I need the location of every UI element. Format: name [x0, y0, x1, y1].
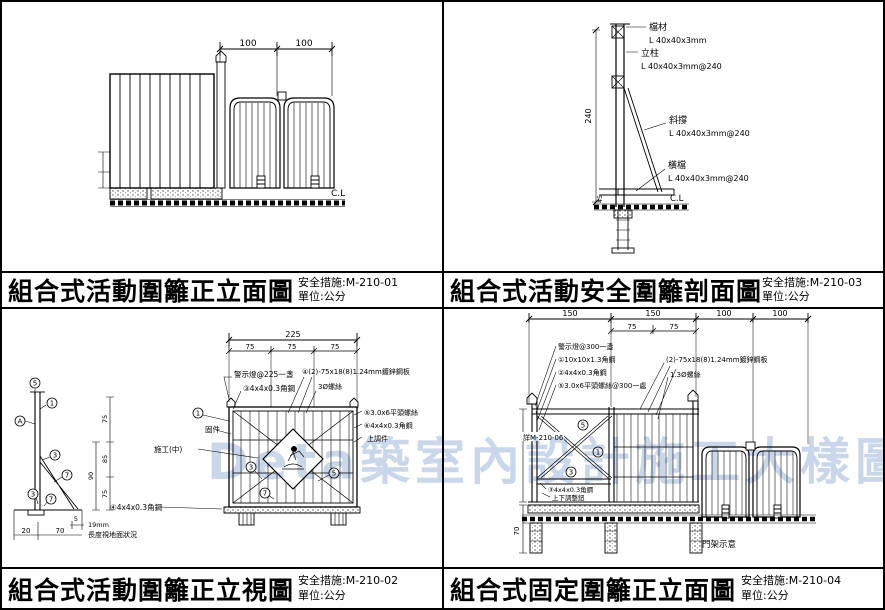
safety-ref: 安全措施:M-210-01	[298, 276, 436, 290]
callout-1: 1	[596, 449, 600, 457]
detail-ref-label: 詳M-210-06	[523, 433, 564, 442]
dim-75c: 75	[331, 343, 340, 351]
ref-block: 安全措施:M-210-04 單位:公分	[741, 574, 879, 603]
unit-label: 單位:公分	[298, 589, 436, 603]
dim-5: 5	[74, 515, 78, 523]
angle-steel-1-label: ①10x10x1.3角鋼	[558, 355, 616, 364]
drawing-sheet: 100 100 C.L	[0, 0, 885, 610]
callout-3: 3	[53, 452, 57, 460]
front-elevation-drawing: 100 100 C.L	[2, 2, 442, 271]
dim-base: 45	[597, 195, 604, 203]
centerline-label: C.L	[331, 189, 345, 199]
post-label: 立柱	[641, 47, 659, 59]
side-detail-geometry	[14, 389, 114, 540]
cap-spec: L 40x40x3mm	[649, 36, 707, 45]
panel-spec-label: (2)-75x18(8)1.24mm鍍鋅鋼板	[666, 355, 768, 364]
fixed-fence-drawing: 詳M-210-06 5 1 3 150 150 100 100 75 75 警示…	[444, 309, 885, 567]
callout-1-frame: 1	[196, 410, 200, 418]
centerline-label: C.L	[670, 194, 684, 204]
dim-v2: 85	[101, 455, 109, 463]
callout-7-frame: 7	[263, 490, 267, 498]
rail-label: 橫檔	[668, 159, 686, 171]
ref-block: 安全措施:M-210-02 單位:公分	[298, 574, 436, 603]
adjuster-label: 上調件	[367, 434, 388, 443]
flat-screw-label: ⑤3.0x6平頭螺絲	[364, 408, 418, 417]
ref-block: 安全措施:M-210-03 單位:公分	[762, 276, 885, 305]
angle-steel-label: ③4x4x0.3角鋼	[243, 383, 295, 393]
callout-5: 5	[33, 380, 37, 388]
worker-icon	[291, 446, 297, 452]
page-title: 組合式活動安全圍籬剖面圖	[450, 272, 762, 308]
flat-screw-label: ⑤3.0x6平頭螺絲@300一處	[558, 381, 646, 390]
panel-fixed-fence: 詳M-210-06 5 1 3 150 150 100 100 75 75 警示…	[444, 309, 885, 567]
dim-150a: 150	[562, 309, 577, 318]
dim-100b: 100	[772, 309, 787, 318]
ground-note: 長度視地面狀況	[88, 530, 137, 539]
wire-label: 1.3Ø螺絲	[670, 370, 701, 379]
dim-v4: 75	[101, 490, 109, 498]
warning-light-label: 警示燈@225一盞	[234, 369, 294, 379]
callout-1: 1	[50, 400, 54, 408]
dim-19mm: 19mm	[88, 521, 109, 529]
angle-bottom-label: ④4x4x0.3角鋼	[110, 502, 162, 512]
dim-100-left: 100	[239, 39, 256, 49]
safety-ref: 安全措施:M-210-02	[298, 574, 436, 588]
titlebar-front-view: 組合式活動圍籬正立視圖 安全措施:M-210-02 單位:公分	[2, 567, 442, 608]
callout-A: A	[18, 418, 23, 426]
screw-label: 3Ø螺絲	[318, 382, 342, 391]
gate-note-label: 門架示意	[702, 539, 736, 550]
titlebar-section: 組合式活動安全圍籬剖面圖 安全措施:M-210-03 單位:公分	[444, 271, 885, 309]
page-title: 組合式活動圍籬正立視圖	[8, 571, 294, 607]
callout-5: 5	[581, 422, 585, 430]
dim-20: 20	[22, 527, 31, 535]
dim-100-right: 100	[295, 39, 312, 49]
front-view-drawing: 5 1 A 3 7 3 7 20 70 5 19mm 長度視地面狀況 75 85…	[2, 309, 442, 567]
page-title: 組合式活動圍籬正立面圖	[8, 272, 294, 308]
angle-steel-2-label: ②4x4x0.3角鋼	[558, 368, 607, 377]
dim-70: 70	[56, 527, 65, 535]
rail-spec: L 40x40x3mm@240	[668, 174, 749, 183]
section-drawing: 檔材 L 40x40x3mm 立柱 L 40x40x3mm@240 斜撐 L 4…	[444, 2, 885, 271]
dim-height: 240	[584, 108, 593, 123]
titlebar-front-elevation: 組合式活動圍籬正立面圖 安全措施:M-210-01 單位:公分	[2, 271, 442, 309]
construction-sign-label: 施工(中)	[154, 444, 182, 454]
callout-3: 3	[569, 469, 573, 477]
brace-spec: L 40x40x3mm@240	[669, 129, 750, 138]
dim-75a: 75	[628, 323, 637, 331]
dim-150b: 150	[645, 309, 660, 318]
callout-5-frame: 5	[332, 470, 336, 478]
dim-v3: 90	[87, 472, 95, 480]
unit-label: 單位:公分	[741, 589, 879, 603]
front-elevation-geometry	[98, 42, 345, 207]
warning-light-label: 警示燈@300一盞	[558, 342, 613, 351]
callout-7: 7	[65, 472, 69, 480]
adjuster-label: 上下調整鈕	[552, 493, 585, 502]
callout-3-frame: 3	[249, 464, 253, 472]
callout-7b: 7	[49, 496, 53, 504]
unit-label: 單位:公分	[762, 290, 885, 304]
brace-label: 斜撐	[669, 114, 687, 126]
page-title: 組合式固定圍籬正立面圖	[450, 571, 736, 607]
unit-label: 單位:公分	[298, 290, 436, 304]
ref-block: 安全措施:M-210-01 單位:公分	[298, 276, 436, 305]
dim-225: 225	[285, 330, 300, 339]
dim-75b: 75	[670, 323, 679, 331]
angle-mid-label: ③4x4x0.3角鋼	[548, 485, 594, 494]
angle-iron-label: ⑥4x4x0.3角鋼	[364, 421, 413, 430]
panel-front-view: 5 1 A 3 7 3 7 20 70 5 19mm 長度視地面狀況 75 85…	[2, 309, 442, 567]
safety-ref: 安全措施:M-210-04	[741, 574, 879, 588]
safety-ref: 安全措施:M-210-03	[762, 276, 885, 290]
dim-100a: 100	[716, 309, 731, 318]
callout-3b: 3	[31, 491, 35, 499]
titlebar-fixed-fence: 組合式固定圍籬正立面圖 安全措施:M-210-04 單位:公分	[444, 567, 885, 608]
dim-v1: 75	[101, 415, 109, 423]
dim-75b: 75	[288, 343, 297, 351]
cap-label: 檔材	[649, 21, 667, 33]
panel-spec-label: ④(2)-75x18(8)1.24mm鍍鋅鋼板	[302, 367, 410, 376]
panel-section: 檔材 L 40x40x3mm 立柱 L 40x40x3mm@240 斜撐 L 4…	[444, 2, 885, 271]
dim-depth-70: 70	[513, 527, 521, 536]
post-spec: L 40x40x3mm@240	[641, 62, 722, 71]
dim-75a: 75	[246, 343, 255, 351]
panel-front-elevation: 100 100 C.L	[2, 2, 442, 271]
fixture-label: 固件	[205, 424, 220, 434]
